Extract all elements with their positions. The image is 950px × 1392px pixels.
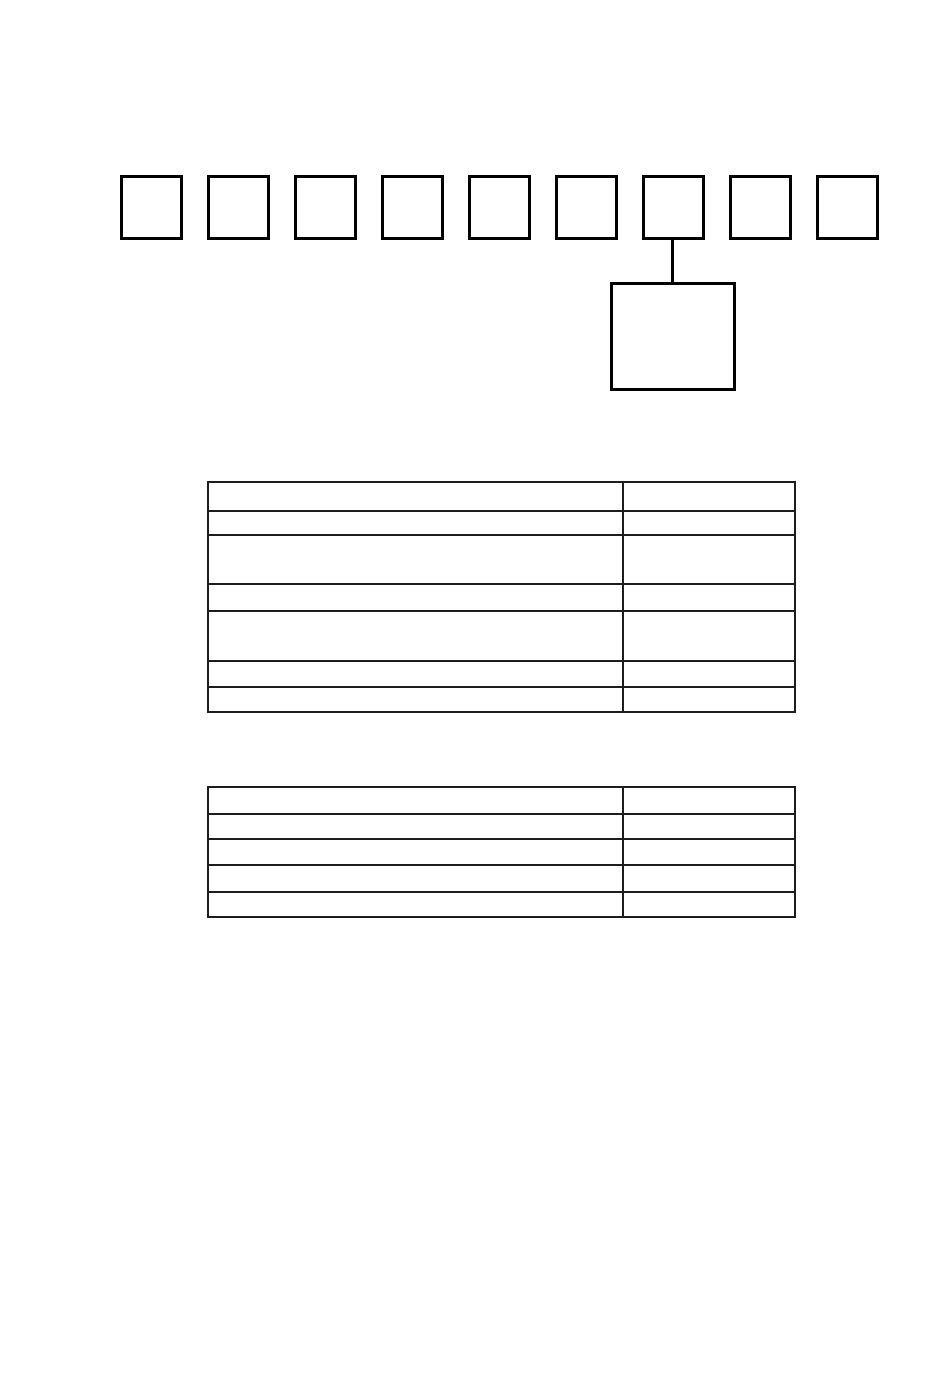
code-digit-row [120,175,879,240]
table-row [208,584,795,611]
connector-line [671,240,674,284]
code-digit-box-4 [381,175,444,240]
table-row [208,687,795,712]
table-row [208,661,795,687]
label-cell [208,865,623,892]
value-cell [623,892,795,917]
table-row [208,511,795,535]
code-digit-box-8 [729,175,792,240]
label-cell [208,687,623,712]
label-cell [208,611,623,661]
value-cell [623,814,795,839]
table-row [208,535,795,584]
table-row [208,787,795,814]
code-digit-box-2 [207,175,270,240]
value-cell [623,584,795,611]
label-cell [208,787,623,814]
table-row [208,814,795,839]
label-cell [208,482,623,511]
table-row [208,839,795,865]
label-cell [208,814,623,839]
value-cell [623,865,795,892]
label-cell [208,584,623,611]
code-digit-box-9 [816,175,879,240]
label-cell [208,511,623,535]
callout-box [610,282,736,391]
code-digit-box-5 [468,175,531,240]
spec-table-upper [207,481,796,713]
code-digit-box-1 [120,175,183,240]
value-cell [623,787,795,814]
value-cell [623,687,795,712]
spec-table-lower [207,786,796,918]
code-digit-box-6 [555,175,618,240]
value-cell [623,611,795,661]
label-cell [208,839,623,865]
label-cell [208,535,623,584]
value-cell [623,511,795,535]
code-digit-box-3 [294,175,357,240]
value-cell [623,661,795,687]
table-row [208,865,795,892]
value-cell [623,839,795,865]
value-cell [623,482,795,511]
table-row [208,892,795,917]
table-row [208,611,795,661]
table-row [208,482,795,511]
code-digit-box-7 [642,175,705,240]
label-cell [208,892,623,917]
label-cell [208,661,623,687]
value-cell [623,535,795,584]
document-page [0,0,950,1392]
